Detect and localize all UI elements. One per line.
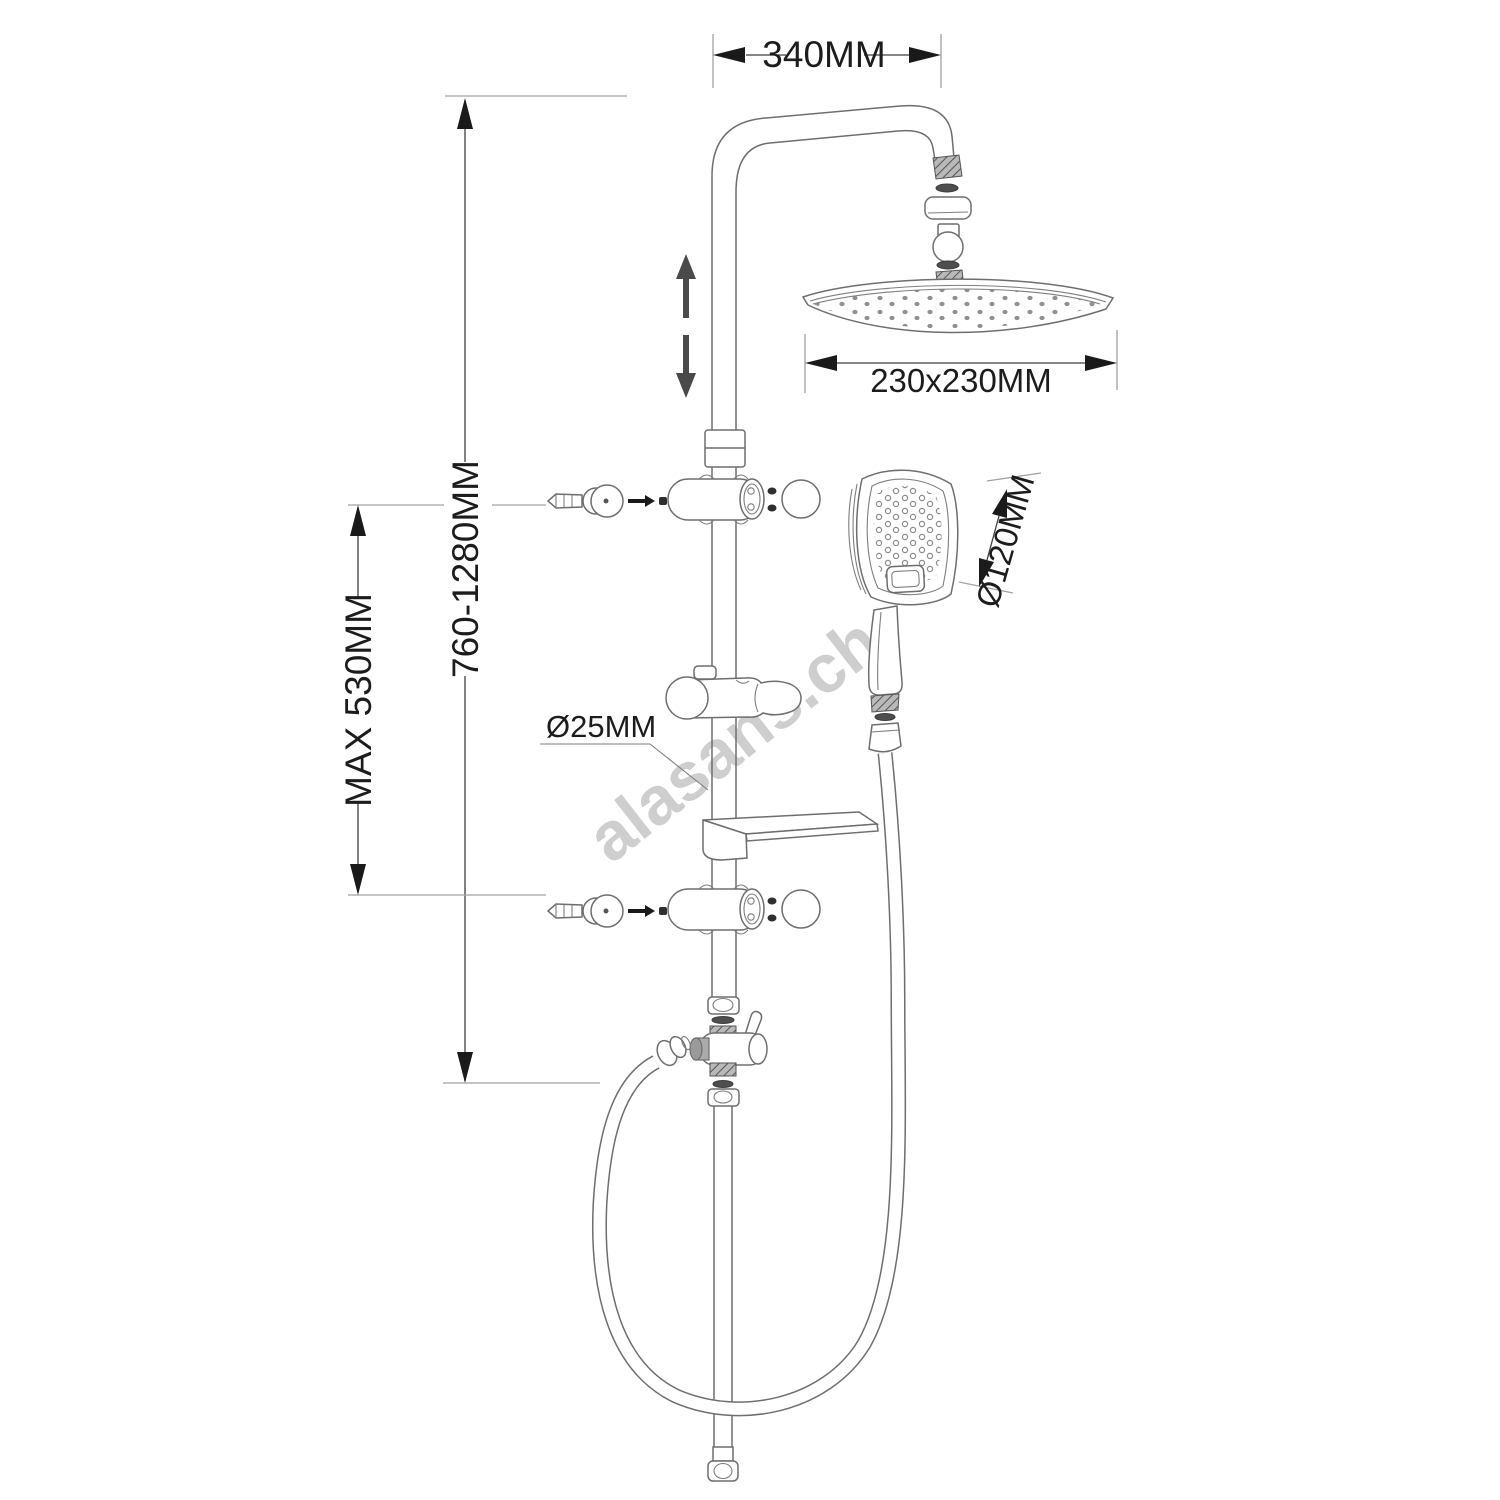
wall-bracket-lower <box>548 885 820 934</box>
threaded-collar-top <box>933 155 962 179</box>
cover-cap <box>782 480 820 518</box>
dimension-hand-shower-label: Ø120MM <box>968 471 1041 612</box>
bottom-pipe-fitting <box>708 1447 738 1481</box>
adjust-down-arrow <box>676 335 696 398</box>
pipe-diameter-label: Ø25MM <box>546 709 656 744</box>
dimension-max-slide-label: MAX 530MM <box>338 593 379 807</box>
adjust-up-arrow <box>676 254 696 318</box>
hand-shower-handle <box>869 606 902 695</box>
washer <box>936 184 958 192</box>
washer <box>713 1081 733 1088</box>
set-screw <box>659 497 667 505</box>
screw <box>768 488 777 495</box>
rain-shower-head <box>803 279 1113 332</box>
soap-shelf <box>703 812 878 860</box>
dimension-head-size-label: 230x230MM <box>870 362 1052 399</box>
holder-end-cap <box>666 677 708 719</box>
assembly-arrow <box>628 495 655 507</box>
dimension-top-width-label: 340MM <box>762 34 885 75</box>
shower-system-diagram: alasans.ch 340MM 760-1280MM MAX 530MM <box>0 0 1500 1500</box>
ball-joint <box>933 232 963 262</box>
diverter-valve <box>690 997 767 1106</box>
hose-nut <box>653 1034 692 1069</box>
hose-cone-nut <box>869 723 901 752</box>
wall-anchor <box>548 494 582 508</box>
threaded-collar <box>710 1063 736 1076</box>
dimension-top-width: 340MM <box>713 34 941 88</box>
dimension-hand-shower: Ø120MM <box>959 471 1041 612</box>
dimension-max-slide: MAX 530MM <box>338 505 546 895</box>
dimension-head-size: 230x230MM <box>805 330 1117 399</box>
handle-thread <box>871 694 899 712</box>
washer <box>875 714 895 721</box>
knob-center <box>604 499 609 504</box>
holder-tab <box>694 666 716 679</box>
dimension-total-height: 760-1280MM <box>443 96 627 1083</box>
washer <box>712 1017 734 1024</box>
screw <box>768 505 777 512</box>
wall-bracket-upper <box>548 475 820 524</box>
diverter-inlet-cap <box>690 1038 709 1060</box>
connector-nut <box>925 197 971 219</box>
washer <box>937 261 959 269</box>
hand-shower <box>849 470 958 751</box>
technical-drawing-page: alasans.ch 340MM 760-1280MM MAX 530MM <box>0 0 1500 1500</box>
head-connector-parts <box>925 155 971 290</box>
dimension-total-height-label: 760-1280MM <box>445 460 486 678</box>
